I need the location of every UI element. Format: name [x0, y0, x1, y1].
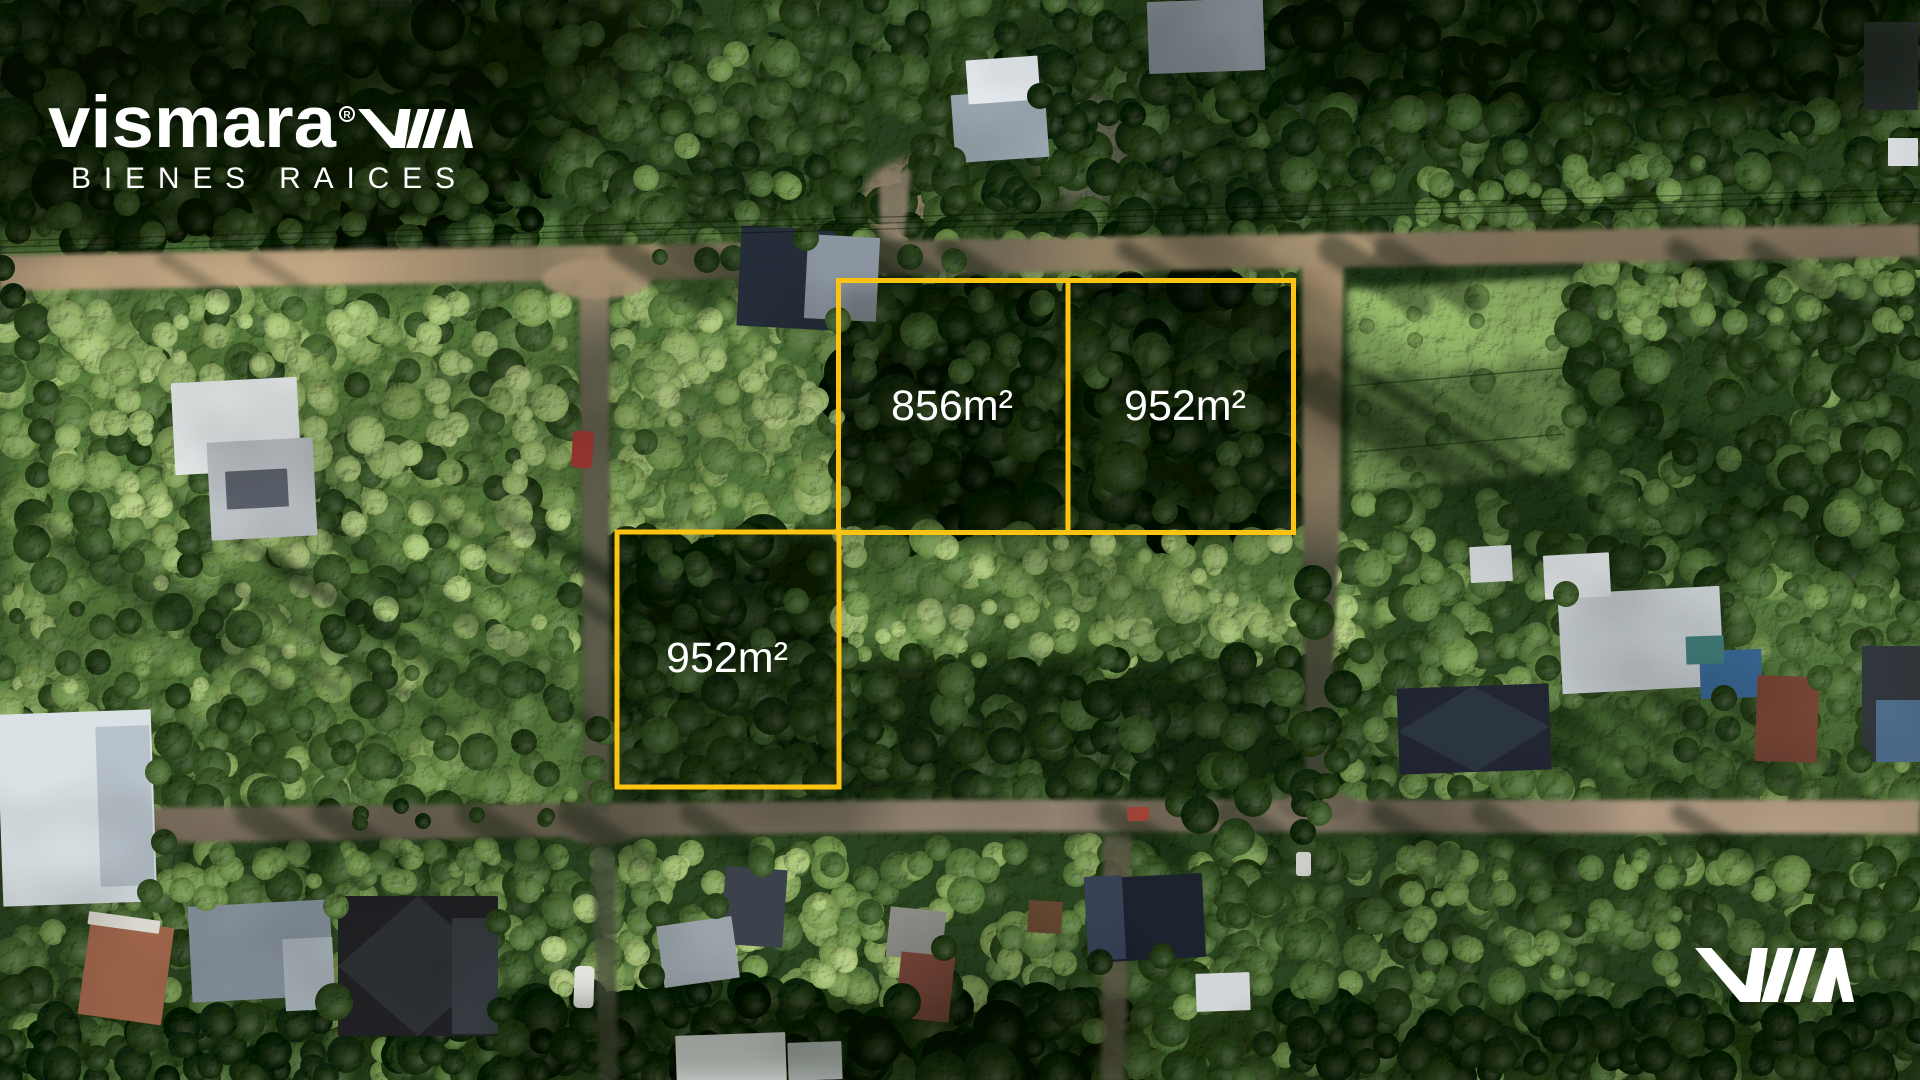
- svg-text:952m²: 952m²: [1124, 382, 1246, 430]
- svg-text:856m²: 856m²: [891, 382, 1013, 430]
- svg-text:952m²: 952m²: [666, 634, 788, 682]
- svg-text:R: R: [343, 110, 351, 121]
- svg-text:BIENES RAICES: BIENES RAICES: [71, 162, 467, 195]
- svg-text:vismara: vismara: [48, 82, 337, 163]
